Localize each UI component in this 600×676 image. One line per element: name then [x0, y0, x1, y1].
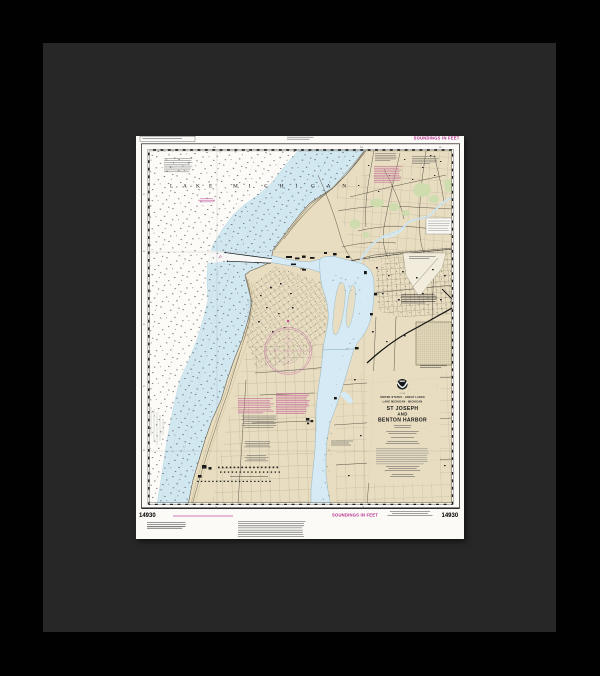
- svg-text:05: 05: [143, 324, 146, 326]
- svg-text:A: A: [327, 184, 331, 190]
- svg-text:SOUNDINGS IN FEET: SOUNDINGS IN FEET: [332, 513, 378, 518]
- svg-text:I: I: [295, 184, 297, 190]
- svg-text:G: G: [311, 184, 315, 190]
- svg-text:I: I: [249, 184, 251, 190]
- svg-text:UNITED STATES - GREAT LAKES: UNITED STATES - GREAT LAKES: [380, 396, 425, 399]
- svg-text:05: 05: [143, 251, 146, 253]
- svg-text:28ʼ: 28ʼ: [360, 146, 363, 149]
- svg-text:C & GS: C & GS: [400, 393, 405, 395]
- svg-text:05: 05: [143, 194, 146, 196]
- svg-text:M: M: [233, 184, 238, 190]
- svg-text:C: C: [264, 184, 268, 190]
- svg-text:30ʼ: 30ʼ: [213, 146, 216, 149]
- svg-text:N: N: [342, 184, 346, 190]
- svg-text:H: H: [280, 184, 284, 190]
- svg-text:14930: 14930: [139, 513, 156, 519]
- svg-text:14930: 14930: [442, 513, 459, 519]
- svg-text:SOUNDINGS IN FEET: SOUNDINGS IN FEET: [414, 136, 460, 140]
- svg-text:K: K: [196, 184, 200, 190]
- svg-text:BENTON HARBOR: BENTON HARBOR: [378, 418, 427, 424]
- svg-text:A: A: [183, 184, 187, 190]
- svg-text:05: 05: [143, 450, 146, 452]
- svg-text:05: 05: [143, 386, 146, 388]
- svg-text:LAKE MICHIGAN - MICHIGAN: LAKE MICHIGAN - MICHIGAN: [383, 400, 423, 403]
- svg-text:26ʼ: 26ʼ: [439, 146, 442, 149]
- svg-text:AND: AND: [397, 411, 407, 416]
- svg-text:L: L: [170, 184, 173, 190]
